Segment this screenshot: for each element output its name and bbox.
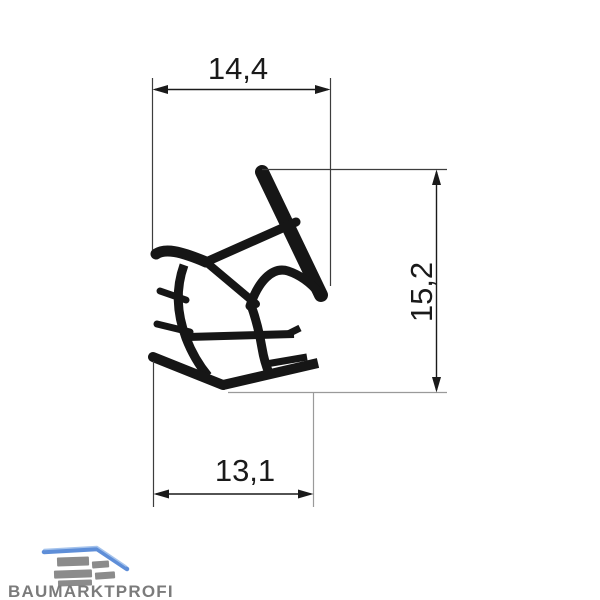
logo-block xyxy=(95,571,115,579)
profile-left-spine xyxy=(178,265,208,376)
brand-logo: BAUMARKTPROFI xyxy=(8,547,174,600)
profile-bottom-chevron-left-arm xyxy=(153,357,223,385)
logo-brand-text: BAUMARKTPROFI xyxy=(8,582,174,600)
dimension-label-right-height: 15,2 xyxy=(404,262,439,322)
arrowhead-bottom-left xyxy=(154,490,170,499)
arrowhead-top-left xyxy=(153,85,169,94)
dimension-lines xyxy=(155,90,437,495)
arrowhead-top-right xyxy=(315,85,331,94)
profile-mid-rail-hook xyxy=(288,328,300,334)
profile-mid-rail xyxy=(188,334,294,337)
dimension-label-bottom-width: 13,1 xyxy=(215,453,275,488)
arrowhead-height-top xyxy=(432,170,441,186)
light-extension-lines xyxy=(228,393,447,508)
profile-top-left-lobe xyxy=(156,251,206,262)
technical-drawing-canvas: 14,4 15,2 13,1 BAUMARKTPROFI xyxy=(0,0,600,600)
seal-profile xyxy=(153,172,321,385)
logo-block xyxy=(54,569,92,578)
extension-lines xyxy=(153,78,448,507)
logo-block xyxy=(92,560,109,568)
dimension-arrowheads xyxy=(153,85,442,499)
logo-block xyxy=(57,556,89,566)
arrowhead-height-bottom xyxy=(432,377,441,393)
dimension-labels: 14,4 15,2 13,1 xyxy=(208,51,439,488)
profile-blade-stem xyxy=(206,222,296,262)
arrowhead-bottom-right xyxy=(298,490,314,499)
dimension-label-top-width: 14,4 xyxy=(208,51,268,86)
